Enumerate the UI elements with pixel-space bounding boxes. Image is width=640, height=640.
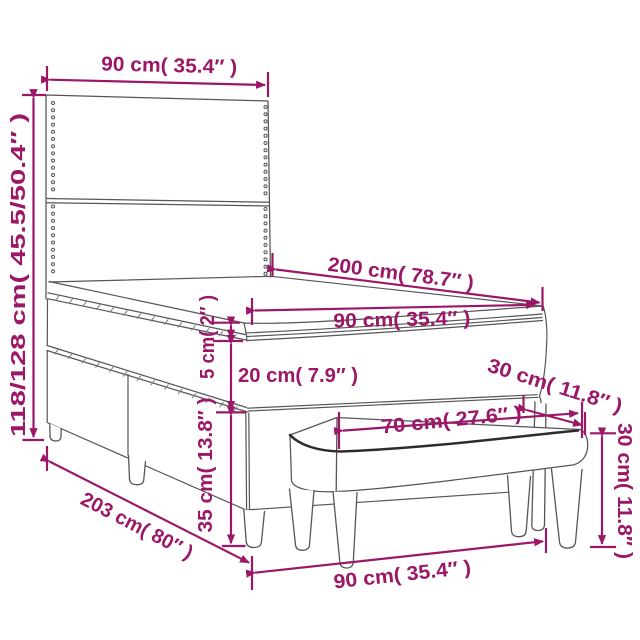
svg-text:30 cm( 11.8″ ): 30 cm( 11.8″ ) [613, 423, 635, 559]
svg-text:90 cm( 35.4″ ): 90 cm( 35.4″ ) [333, 307, 470, 332]
svg-text:90 cm( 35.4″ ): 90 cm( 35.4″ ) [101, 53, 237, 78]
svg-text:118/128 cm( 45.5/50.4″ ): 118/128 cm( 45.5/50.4″ ) [8, 113, 30, 437]
svg-text:35 cm( 13.8″ ): 35 cm( 13.8″ ) [195, 398, 217, 533]
svg-text:20 cm( 7.9″ ): 20 cm( 7.9″ ) [238, 365, 358, 387]
svg-text:5 cm( 2″ ): 5 cm( 2″ ) [197, 295, 219, 379]
